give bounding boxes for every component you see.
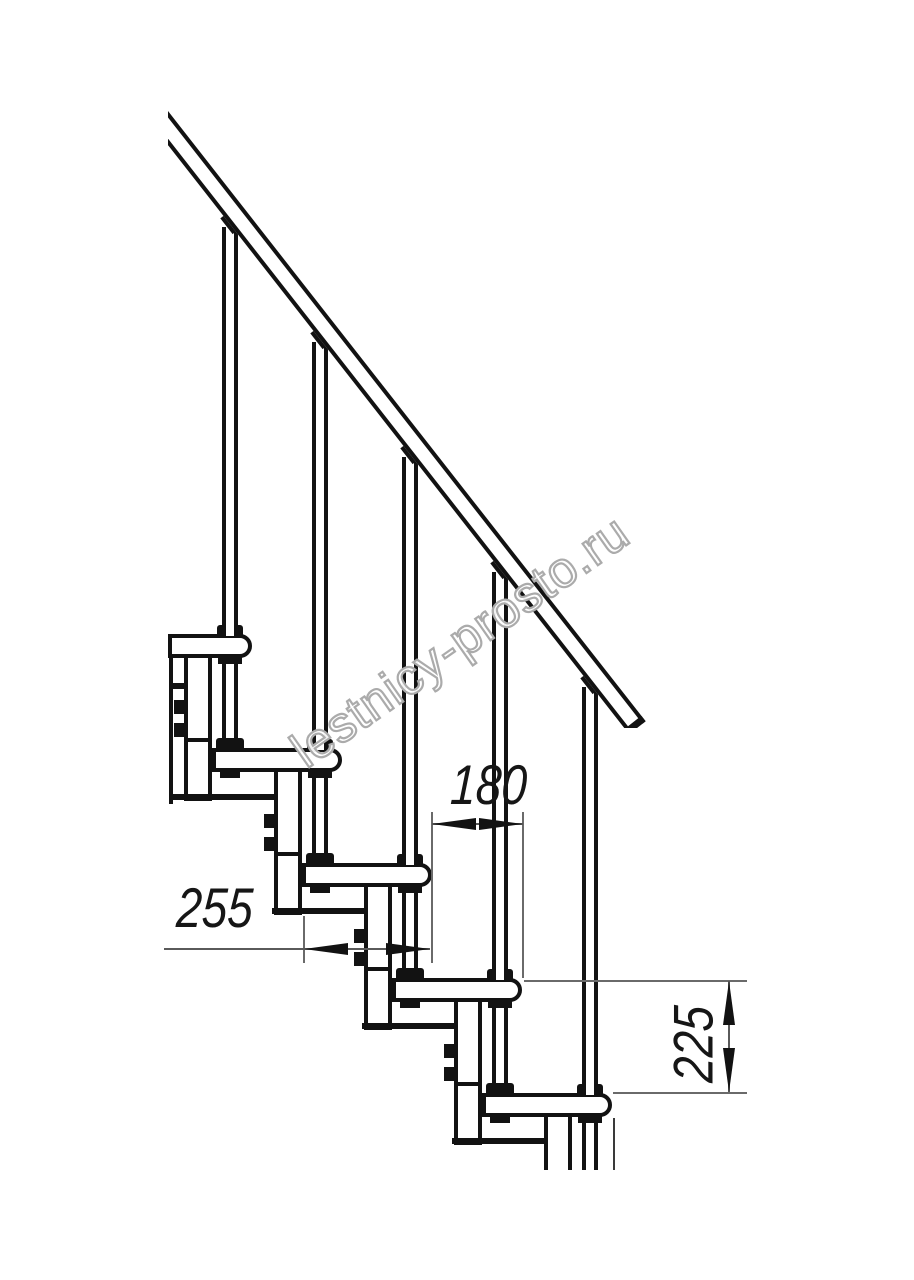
post-bottom-flange [216, 738, 244, 749]
support-column [454, 998, 482, 1145]
dimension-arrow [304, 943, 348, 955]
bolt [444, 1067, 455, 1081]
post-top-fitting [398, 884, 422, 893]
post-bottom-flange [486, 1083, 514, 1094]
bolt [264, 837, 275, 851]
dimension-arrow [723, 1048, 735, 1092]
column-junction-line [456, 1082, 480, 1086]
dimension-arrow [723, 981, 735, 1025]
bolt [264, 814, 275, 828]
post-nut [310, 884, 330, 893]
handrail [168, 111, 646, 728]
post-bottom-flange [306, 853, 334, 864]
view-cut-line [169, 657, 173, 804]
baluster [582, 687, 598, 1095]
post-nut [400, 999, 420, 1008]
column-junction-line [186, 738, 210, 742]
column-junction-line [366, 967, 390, 971]
dimension-label-run: 180 [449, 757, 528, 813]
nose-cut-line [613, 1118, 615, 1170]
extension-line [431, 812, 433, 963]
support-column-cut [568, 1115, 572, 1170]
extension-line [524, 980, 747, 982]
support-column-cut [544, 1115, 548, 1170]
drawing-canvas: 180 255 225 lestnicy-prosto.ru [0, 0, 914, 1280]
dimension-arrow [386, 943, 430, 955]
post-nut [490, 1114, 510, 1123]
bolt [444, 1044, 455, 1058]
spacer-post [582, 1115, 598, 1170]
bolt [354, 952, 365, 966]
support-column [364, 883, 392, 1030]
dimension-label-rise: 225 [666, 1004, 722, 1083]
post-top-fitting [578, 1114, 602, 1123]
extension-line [522, 812, 524, 978]
upper-module-plate-stub [169, 683, 185, 689]
column-base-plate [362, 1023, 455, 1029]
column-junction-line [276, 852, 300, 856]
column-base-plate [272, 908, 365, 914]
extension-line [613, 1092, 747, 1094]
post-top-fitting [488, 999, 512, 1008]
dimension-arrow [479, 818, 523, 830]
dimension-arrow [432, 818, 476, 830]
bolt [354, 929, 365, 943]
dimension-label-depth: 255 [175, 880, 254, 936]
column-base-plate [452, 1138, 545, 1144]
extension-line [303, 916, 305, 963]
post-bottom-flange [396, 968, 424, 979]
